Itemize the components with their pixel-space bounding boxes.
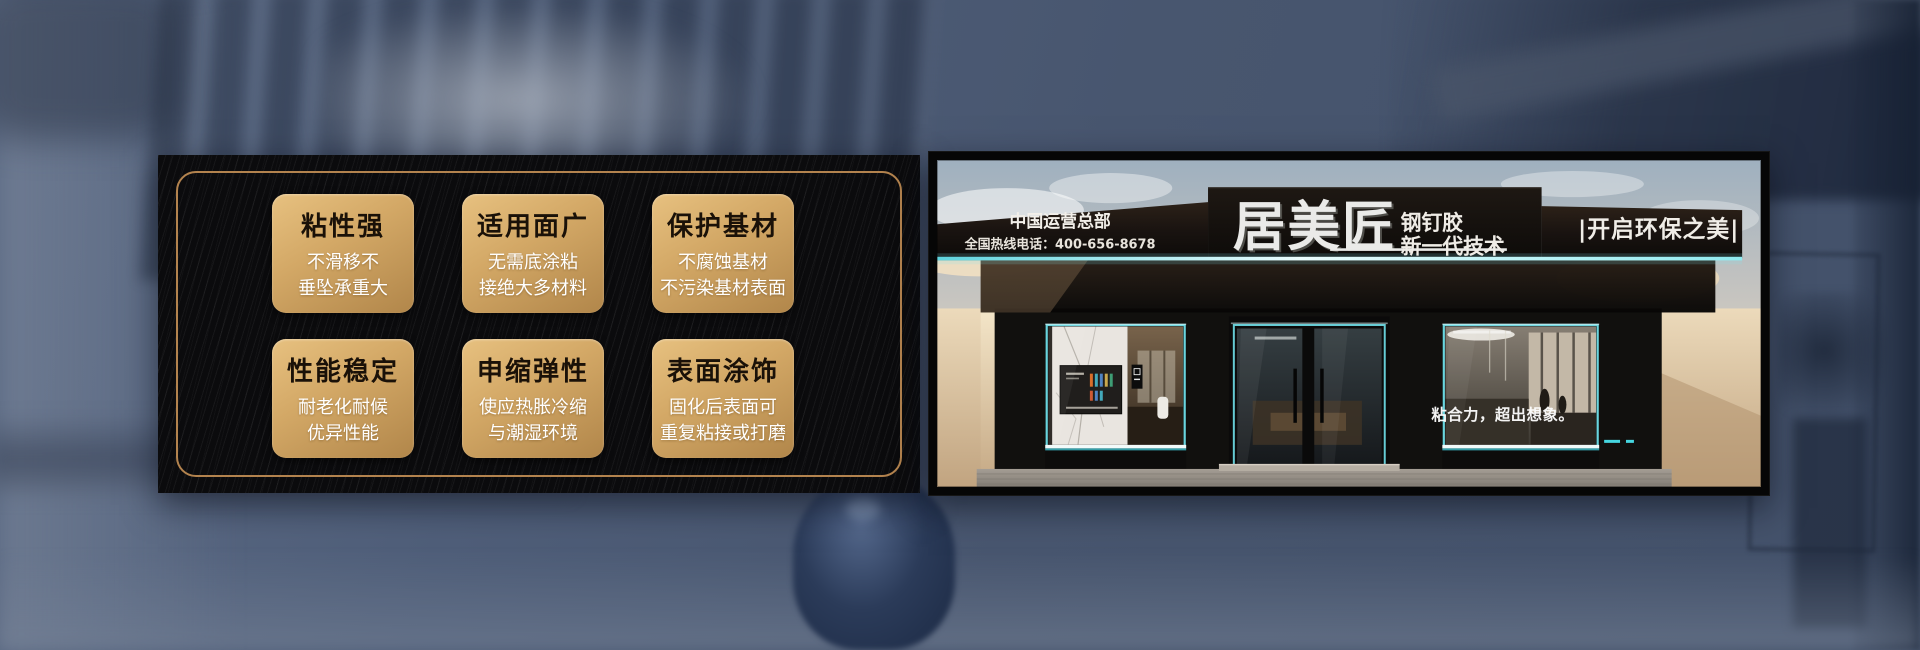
storefront-photo-frame: 粘合力，超出想象。 中国运营总部 全国热线电话：400-656-8678 居美匠… [928,151,1770,496]
feature-card: 粘性强 不滑移不 垂坠承重大 [272,194,414,313]
feature-card: 保护基材 不腐蚀基材 不污染基材表面 [652,194,794,313]
entrance-door [1229,316,1390,470]
feature-line: 垂坠承重大 [272,276,414,302]
feature-card: 适用面广 无需底涂粘 接绝大多材料 [462,194,604,313]
led-dash [1626,440,1634,443]
feature-line: 不腐蚀基材 [652,250,794,276]
background-right-column [1854,0,1920,650]
feature-line: 不滑移不 [272,250,414,276]
feature-title: 性能稳定 [272,351,414,388]
feature-title: 保护基材 [652,206,794,243]
feature-card: 性能稳定 耐老化耐候 优异性能 [272,339,414,458]
promo-banner-page: 粘性强 不滑移不 垂坠承重大 适用面广 无需底涂粘 接绝大多材料 保护基材 不腐… [0,0,1920,650]
sign-product: 钢钉胶 [1401,211,1464,235]
feature-line: 使应热胀冷缩 [462,395,604,421]
feature-line: 接绝大多材料 [462,276,604,302]
canopy-soffit [981,260,1716,312]
sign-hq-label: 中国运营总部 [1009,211,1110,231]
background-floor-glow [0,555,1920,650]
feature-card: 表面涂饰 固化后表面可 重复粘接或打磨 [652,339,794,458]
background-vase-highlight [846,498,880,520]
feature-line: 与潮湿环境 [462,421,604,447]
led-dash [1604,440,1620,443]
sign-hotline: 全国热线电话：400-656-8678 [964,236,1156,252]
feature-line: 无需底涂粘 [462,250,604,276]
feature-title: 表面涂饰 [652,351,794,388]
features-panel: 粘性强 不滑移不 垂坠承重大 适用面广 无需底涂粘 接绝大多材料 保护基材 不腐… [158,155,920,493]
storefront-render: 粘合力，超出想象。 中国运营总部 全国热线电话：400-656-8678 居美匠… [937,160,1761,487]
feature-title: 适用面广 [462,206,604,243]
feature-line: 优异性能 [272,421,414,447]
paper-roll [1157,397,1168,419]
window-slogan-text: 粘合力，超出想象。 [1431,405,1574,424]
feature-line: 重复粘接或打磨 [652,421,794,447]
feature-line: 不污染基材表面 [652,276,794,302]
left-display-window [1045,324,1186,471]
sign-tech-line: 新一代技术 [1401,234,1505,258]
feature-cards-grid: 粘性强 不滑移不 垂坠承重大 适用面广 无需底涂粘 接绝大多材料 保护基材 不腐… [272,194,794,458]
feature-line: 耐老化耐候 [272,395,414,421]
feature-card: 申缩弹性 使应热胀冷缩 与潮湿环境 [462,339,604,458]
sign-eco-slogan: |开启环保之美| [1578,216,1740,243]
feature-line: 固化后表面可 [652,395,794,421]
feature-title: 粘性强 [272,206,414,243]
sunlit-wall-edge [981,308,995,477]
feature-title: 申缩弹性 [462,351,604,388]
